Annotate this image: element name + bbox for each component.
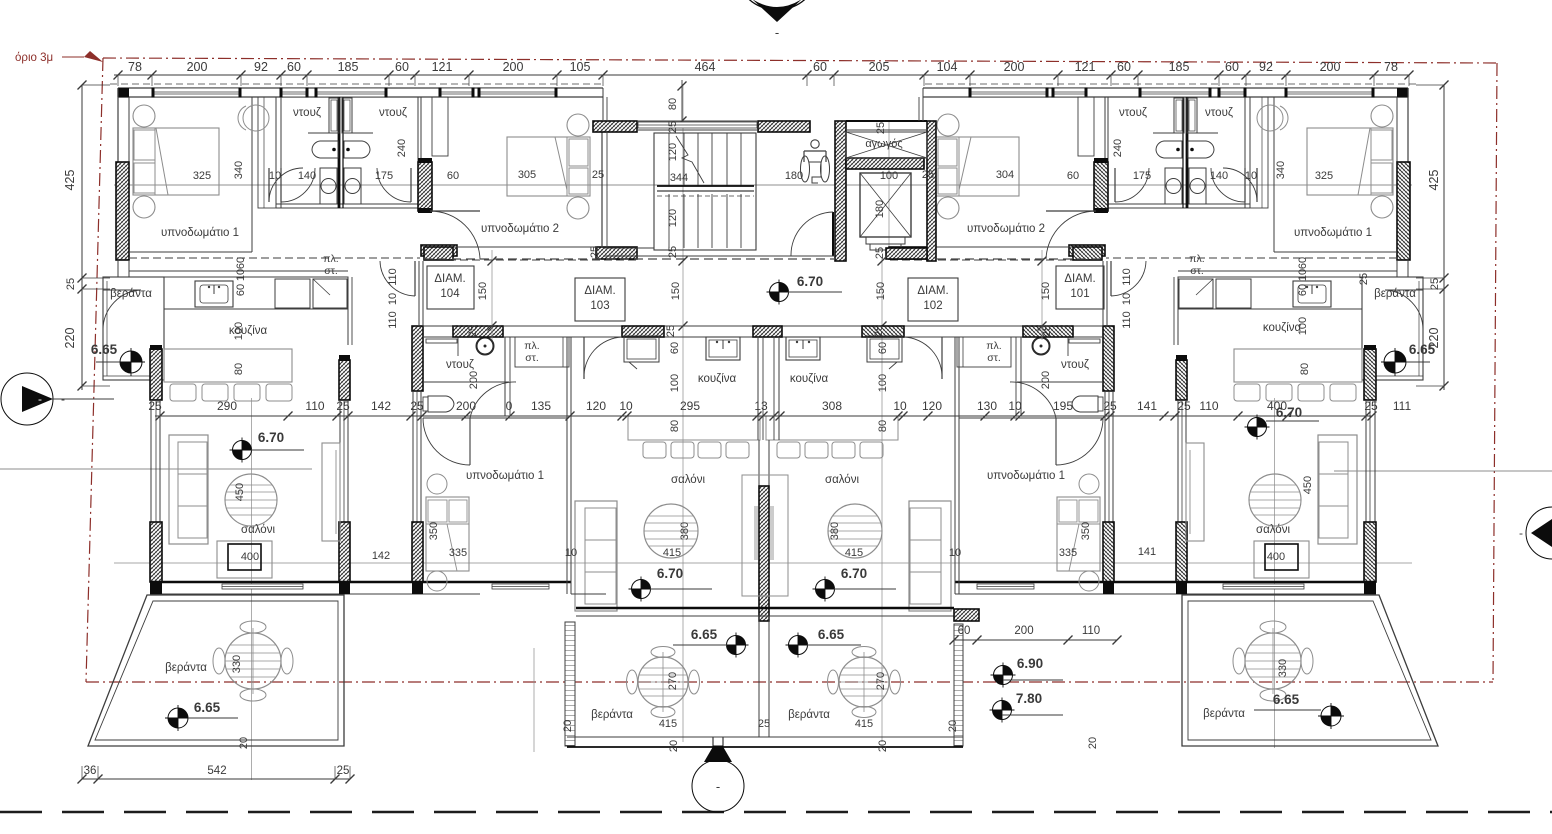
- svg-text:ντουζ: ντουζ: [1205, 107, 1233, 119]
- svg-text:βεράντα: βεράντα: [591, 709, 633, 721]
- svg-text:425: 425: [63, 170, 77, 191]
- svg-text:415: 415: [659, 718, 677, 730]
- svg-text:121: 121: [1075, 60, 1096, 74]
- svg-text:200: 200: [1014, 625, 1033, 637]
- svg-text:25: 25: [589, 246, 601, 258]
- svg-text:10: 10: [1008, 399, 1022, 413]
- svg-text:σαλόνι: σαλόνι: [1256, 524, 1290, 536]
- svg-text:6.70: 6.70: [797, 274, 823, 289]
- svg-text:325: 325: [193, 170, 211, 182]
- svg-text:140: 140: [298, 170, 316, 182]
- svg-text:10: 10: [949, 547, 961, 559]
- svg-text:290: 290: [217, 399, 237, 413]
- svg-text:180: 180: [874, 200, 886, 218]
- svg-text:142: 142: [372, 550, 390, 562]
- svg-text:542: 542: [207, 765, 226, 777]
- svg-text:25: 25: [667, 246, 679, 258]
- svg-text:20: 20: [562, 720, 574, 732]
- svg-text:335: 335: [1059, 547, 1077, 559]
- svg-text:295: 295: [680, 399, 700, 413]
- svg-text:80: 80: [233, 363, 245, 375]
- svg-text:60: 60: [958, 625, 971, 637]
- svg-text:υπνοδωμάτιο 2: υπνοδωμάτιο 2: [967, 223, 1045, 235]
- svg-text:20: 20: [877, 740, 889, 752]
- svg-text:110: 110: [1121, 311, 1133, 329]
- svg-text:335: 335: [449, 547, 467, 559]
- svg-text:340: 340: [233, 161, 245, 179]
- svg-text:200: 200: [187, 60, 208, 74]
- svg-text:ΔΙΑΜ.: ΔΙΑΜ.: [1064, 273, 1095, 285]
- svg-text:60: 60: [287, 60, 301, 74]
- svg-text:βεράντα: βεράντα: [165, 662, 207, 674]
- svg-text:πλ.: πλ.: [986, 340, 1001, 352]
- svg-text:185: 185: [1169, 60, 1190, 74]
- svg-text:6.65: 6.65: [818, 627, 845, 642]
- svg-text:ντουζ: ντουζ: [293, 107, 321, 119]
- svg-text:10: 10: [1121, 293, 1133, 305]
- svg-text:415: 415: [845, 547, 863, 559]
- svg-text:240: 240: [396, 139, 408, 157]
- svg-text:100: 100: [877, 374, 889, 392]
- svg-text:105: 105: [570, 60, 591, 74]
- svg-text:25: 25: [1358, 273, 1370, 285]
- svg-text:205: 205: [869, 60, 890, 74]
- svg-text:103: 103: [590, 300, 609, 312]
- svg-text:κουζίνα: κουζίνα: [1263, 322, 1302, 334]
- svg-text:80: 80: [669, 420, 681, 432]
- svg-text:στ.: στ.: [987, 352, 1001, 364]
- svg-text:στ.: στ.: [1190, 265, 1204, 277]
- svg-text:305: 305: [518, 169, 536, 181]
- svg-text:110: 110: [1199, 399, 1218, 413]
- svg-text:υπνοδωμάτιο 1: υπνοδωμάτιο 1: [1294, 227, 1372, 239]
- svg-text:464: 464: [695, 60, 716, 74]
- svg-text:υπνοδωμάτιο 2: υπνοδωμάτιο 2: [481, 223, 559, 235]
- svg-text:ντουζ: ντουζ: [1119, 107, 1147, 119]
- svg-text:25: 25: [336, 399, 350, 413]
- svg-text:270: 270: [667, 672, 679, 690]
- svg-text:25: 25: [1364, 399, 1378, 413]
- svg-text:60: 60: [1225, 60, 1239, 74]
- svg-text:104: 104: [937, 60, 958, 74]
- svg-text:344: 344: [670, 172, 688, 184]
- svg-text:141: 141: [1138, 546, 1156, 558]
- svg-text:220: 220: [63, 328, 77, 349]
- svg-text:140: 140: [1210, 170, 1228, 182]
- svg-text:110: 110: [1121, 268, 1133, 286]
- svg-text:10: 10: [1297, 269, 1309, 281]
- svg-text:350: 350: [428, 522, 440, 540]
- svg-text:20: 20: [947, 720, 959, 732]
- svg-text:195: 195: [1053, 399, 1073, 413]
- svg-text:330: 330: [231, 655, 243, 673]
- svg-text:6.65: 6.65: [1273, 692, 1300, 707]
- svg-text:80: 80: [667, 98, 679, 110]
- svg-text:10: 10: [893, 399, 907, 413]
- svg-text:-: -: [38, 392, 42, 406]
- svg-text:60: 60: [447, 170, 459, 182]
- svg-text:ΔΙΑΜ.: ΔΙΑΜ.: [434, 273, 465, 285]
- svg-text:175: 175: [1133, 170, 1151, 182]
- svg-text:25: 25: [65, 278, 77, 290]
- svg-text:6.65: 6.65: [194, 700, 221, 715]
- svg-text:πλ.: πλ.: [524, 340, 539, 352]
- svg-text:-: -: [716, 779, 720, 794]
- svg-text:120: 120: [922, 399, 942, 413]
- svg-text:185: 185: [338, 60, 359, 74]
- svg-text:υπνοδωμάτιο 1: υπνοδωμάτιο 1: [987, 470, 1065, 482]
- svg-text:κουζίνα: κουζίνα: [698, 373, 737, 385]
- svg-text:400: 400: [241, 551, 259, 563]
- svg-text:όριο 3μ: όριο 3μ: [15, 52, 53, 64]
- svg-text:10: 10: [619, 399, 633, 413]
- svg-text:ντουζ: ντουζ: [446, 359, 474, 371]
- svg-text:ντουζ: ντουζ: [379, 107, 407, 119]
- svg-text:10: 10: [387, 293, 399, 305]
- svg-text:60: 60: [877, 342, 889, 354]
- svg-text:200: 200: [1004, 60, 1025, 74]
- svg-text:6.65: 6.65: [1409, 342, 1436, 357]
- svg-text:400: 400: [1267, 551, 1285, 563]
- svg-text:60: 60: [235, 284, 247, 296]
- svg-text:25: 25: [875, 122, 887, 134]
- svg-text:175: 175: [375, 170, 393, 182]
- svg-text:στ.: στ.: [525, 352, 539, 364]
- svg-text:25: 25: [337, 765, 350, 777]
- svg-text:υπνοδωμάτιο 1: υπνοδωμάτιο 1: [466, 470, 544, 482]
- svg-text:415: 415: [855, 718, 873, 730]
- svg-text:25: 25: [467, 325, 479, 337]
- svg-text:-: -: [775, 25, 779, 40]
- svg-text:200: 200: [468, 371, 480, 389]
- svg-text:ντουζ: ντουζ: [1061, 359, 1089, 371]
- svg-text:100: 100: [880, 170, 898, 182]
- svg-text:-: -: [1519, 526, 1523, 540]
- svg-text:0: 0: [506, 399, 513, 413]
- svg-text:60: 60: [395, 60, 409, 74]
- svg-text:380: 380: [679, 522, 691, 540]
- svg-text:78: 78: [1384, 60, 1398, 74]
- svg-text:6.70: 6.70: [657, 566, 683, 581]
- svg-text:102: 102: [923, 300, 942, 312]
- svg-text:σαλόνι: σαλόνι: [671, 474, 705, 486]
- svg-text:ΔΙΑΜ.: ΔΙΑΜ.: [917, 285, 948, 297]
- svg-text:60: 60: [1297, 284, 1309, 296]
- svg-text:120: 120: [667, 209, 679, 227]
- svg-text:βεράντα: βεράντα: [1374, 288, 1416, 300]
- svg-text:10: 10: [235, 269, 247, 281]
- svg-text:425: 425: [1427, 170, 1441, 191]
- svg-text:350: 350: [1080, 522, 1092, 540]
- svg-text:200: 200: [1320, 60, 1341, 74]
- svg-text:6.65: 6.65: [91, 342, 118, 357]
- svg-text:92: 92: [1259, 60, 1273, 74]
- svg-text:20: 20: [238, 737, 250, 749]
- svg-text:100: 100: [233, 322, 245, 340]
- svg-text:25: 25: [1177, 399, 1191, 413]
- svg-text:110: 110: [387, 311, 399, 329]
- svg-text:450: 450: [234, 483, 246, 501]
- svg-text:25: 25: [1429, 278, 1441, 290]
- svg-text:36: 36: [84, 765, 97, 777]
- svg-text:415: 415: [663, 547, 681, 559]
- svg-text:130: 130: [977, 399, 997, 413]
- svg-text:101: 101: [1070, 288, 1089, 300]
- svg-text:110: 110: [305, 399, 324, 413]
- svg-text:270: 270: [875, 672, 887, 690]
- svg-text:92: 92: [254, 60, 268, 74]
- svg-text:10: 10: [565, 547, 577, 559]
- svg-text:60: 60: [813, 60, 827, 74]
- svg-text:60: 60: [669, 342, 681, 354]
- svg-text:111: 111: [1393, 399, 1412, 413]
- svg-text:25: 25: [874, 247, 886, 259]
- svg-text:25: 25: [922, 169, 934, 181]
- svg-text:σαλόνι: σαλόνι: [825, 474, 859, 486]
- svg-text:104: 104: [440, 288, 460, 300]
- svg-text:380: 380: [829, 522, 841, 540]
- svg-text:στ.: στ.: [324, 265, 338, 277]
- svg-text:110: 110: [387, 268, 399, 286]
- svg-text:κουζίνα: κουζίνα: [790, 373, 829, 385]
- svg-text:80: 80: [877, 420, 889, 432]
- svg-text:25: 25: [873, 325, 885, 337]
- svg-text:110: 110: [1082, 625, 1100, 637]
- svg-text:πλ.: πλ.: [323, 253, 338, 265]
- svg-text:78: 78: [128, 60, 142, 74]
- svg-text:6.70: 6.70: [1276, 405, 1302, 420]
- svg-text:25: 25: [1103, 399, 1117, 413]
- svg-text:10: 10: [1245, 170, 1257, 182]
- svg-text:120: 120: [667, 143, 679, 161]
- svg-text:6.90: 6.90: [1017, 656, 1043, 671]
- svg-text:100: 100: [669, 374, 681, 392]
- svg-text:βεράντα: βεράντα: [788, 709, 830, 721]
- svg-text:25: 25: [667, 121, 679, 133]
- svg-text:25: 25: [1041, 325, 1053, 337]
- svg-text:6.65: 6.65: [691, 627, 718, 642]
- svg-text:6.70: 6.70: [841, 566, 867, 581]
- svg-text:60: 60: [235, 257, 247, 269]
- svg-text:25: 25: [148, 399, 162, 413]
- svg-text:25: 25: [592, 169, 604, 181]
- svg-text:150: 150: [477, 282, 489, 300]
- svg-text:20: 20: [1087, 737, 1099, 749]
- svg-text:330: 330: [1277, 659, 1289, 677]
- svg-text:304: 304: [996, 169, 1014, 181]
- svg-text:121: 121: [432, 60, 453, 74]
- svg-text:80: 80: [1299, 363, 1311, 375]
- svg-text:25: 25: [410, 399, 424, 413]
- svg-text:20: 20: [668, 740, 680, 752]
- svg-text:60: 60: [1117, 60, 1131, 74]
- svg-text:ΔΙΑΜ.: ΔΙΑΜ.: [584, 285, 615, 297]
- svg-text:325: 325: [1315, 170, 1333, 182]
- svg-text:7.80: 7.80: [1016, 691, 1042, 706]
- svg-text:135: 135: [531, 399, 551, 413]
- svg-text:100: 100: [1297, 317, 1309, 335]
- svg-text:142: 142: [371, 399, 391, 413]
- svg-text:180: 180: [785, 170, 803, 182]
- svg-text:25: 25: [665, 325, 677, 337]
- svg-text:150: 150: [875, 282, 887, 300]
- svg-text:-: -: [61, 392, 65, 406]
- svg-text:150: 150: [1040, 282, 1052, 300]
- svg-text:340: 340: [1275, 161, 1287, 179]
- svg-text:150: 150: [670, 282, 682, 300]
- svg-text:25: 25: [758, 718, 770, 730]
- svg-text:βεράντα: βεράντα: [1203, 708, 1245, 720]
- svg-text:141: 141: [1137, 399, 1157, 413]
- svg-text:450: 450: [1302, 476, 1314, 494]
- svg-text:σαλόνι: σαλόνι: [241, 524, 275, 536]
- svg-text:200: 200: [456, 399, 476, 413]
- svg-text:120: 120: [586, 399, 606, 413]
- svg-text:10: 10: [269, 170, 281, 182]
- svg-text:200: 200: [503, 60, 524, 74]
- svg-text:6.70: 6.70: [258, 430, 284, 445]
- svg-text:βεράντα: βεράντα: [110, 288, 152, 300]
- svg-text:240: 240: [1112, 139, 1124, 157]
- svg-text:200: 200: [1040, 371, 1052, 389]
- svg-text:αγωγός: αγωγός: [865, 138, 902, 150]
- svg-text:60: 60: [1297, 257, 1309, 269]
- svg-text:πλ.: πλ.: [1189, 253, 1204, 265]
- svg-text:υπνοδωμάτιο 1: υπνοδωμάτιο 1: [161, 227, 239, 239]
- svg-text:308: 308: [822, 399, 842, 413]
- svg-text:60: 60: [1067, 170, 1079, 182]
- svg-text:13: 13: [754, 399, 768, 413]
